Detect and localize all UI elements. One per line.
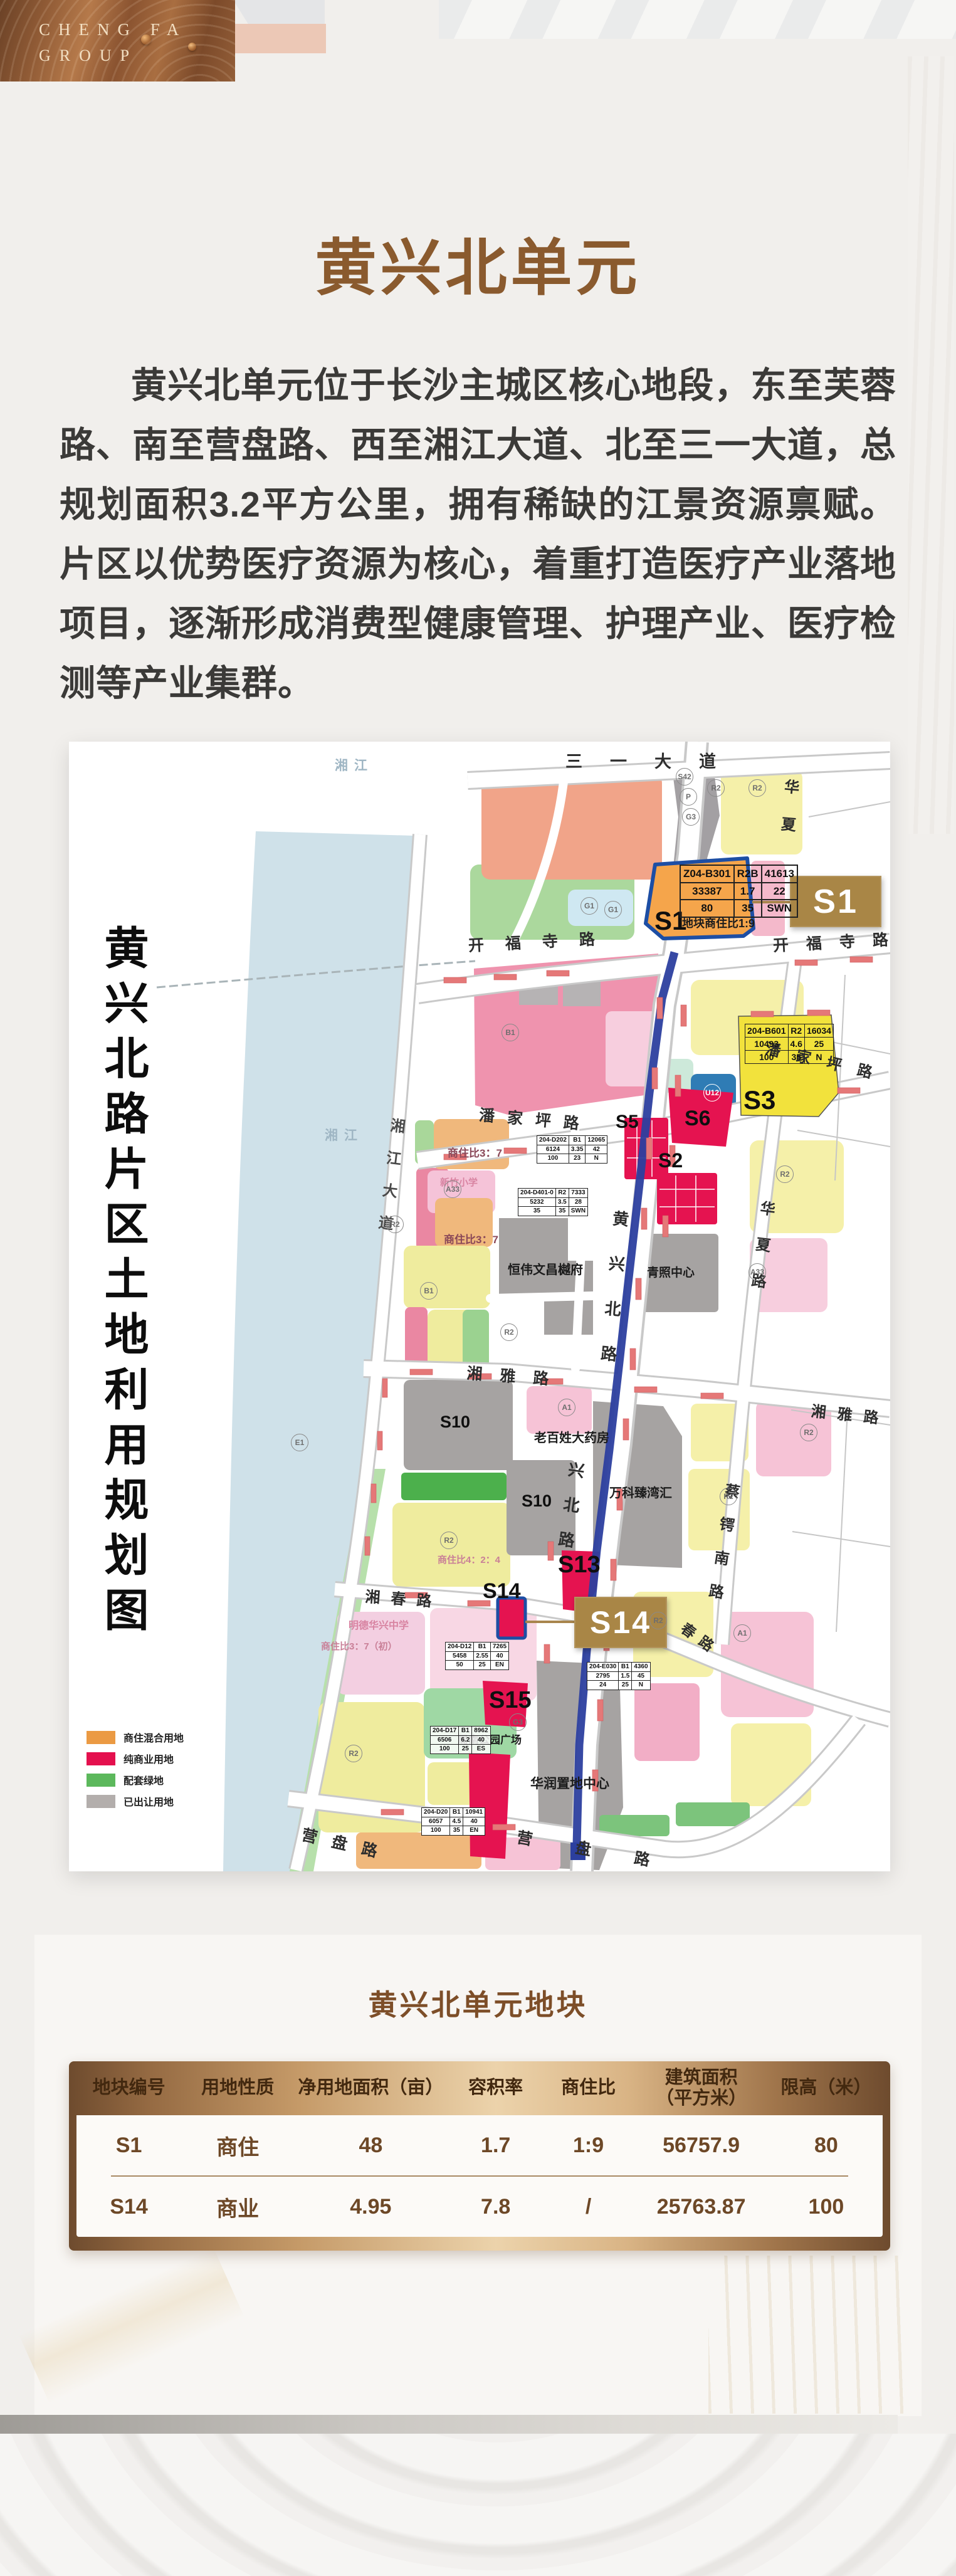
spec-table-d12: 204-D12B17265 54582.5540 5025EN	[445, 1642, 509, 1670]
table-row-s1: S1 商住 48 1.7 1:9 56757.9 80	[76, 2115, 883, 2175]
spec-table-d401: 204-D401-0R27333 52323.528 3535SWN	[518, 1188, 588, 1216]
cell: 7.8	[448, 2195, 544, 2219]
parcel-label-s2: S2	[658, 1149, 683, 1172]
note-ratio424: 商住比4：2：4	[438, 1553, 500, 1566]
zone-code: B1	[420, 1282, 438, 1300]
parcel-table-body: S1 商住 48 1.7 1:9 56757.9 80 S14 商业 4.95 …	[76, 2115, 883, 2237]
landmark-mingde-school: 明德华兴中学	[349, 1617, 409, 1632]
road-label-sanyi-avenue: 三一大道	[565, 748, 743, 772]
parcel-label-s10b: S10	[522, 1491, 552, 1511]
poster-page: { "header": { "brand_line1": "CHENG FA",…	[0, 0, 956, 2576]
marble-streak-bottom-right	[708, 2256, 915, 2414]
cell: 商住	[181, 2130, 294, 2161]
landmark-laobaixing: 老百姓大药房	[534, 1427, 609, 1446]
col-header-parcel-id: 地块编号	[76, 2078, 181, 2098]
brand-logo: CHENG FA GROUP	[0, 0, 235, 81]
zone-code: G1	[580, 897, 598, 915]
legend-swatch-green-space	[87, 1774, 115, 1787]
col-header-plot-ratio: 容积率	[448, 2078, 544, 2098]
zone-code: R2	[800, 1424, 817, 1441]
parcel-label-s15: S15	[489, 1687, 532, 1714]
cell: /	[544, 2195, 633, 2219]
zone-code: E1	[291, 1434, 308, 1451]
spec-table-s1: Z04-B301R2B41613 333871.722 8035SWN	[680, 865, 798, 918]
landmark-qingzhao: 青照中心	[647, 1263, 695, 1280]
zone-code: A1	[558, 1399, 575, 1416]
zone-code: U12	[703, 1084, 721, 1101]
note-ratio37-a: 商住比3：7	[448, 1144, 502, 1160]
zone-code: R2	[500, 1323, 518, 1341]
landmark-hengwei: 恒伟文昌樾府	[508, 1259, 583, 1278]
note-ratio37-b: 商住比3：7	[444, 1231, 498, 1246]
table-row-s14: S14 商业 4.95 7.8 / 25763.87 100	[76, 2177, 883, 2237]
cell: S1	[76, 2133, 181, 2158]
zone-code: R2	[345, 1745, 362, 1762]
droplet-decor	[141, 34, 151, 45]
col-header-net-area: 净用地面积（亩）	[294, 2078, 447, 2098]
marble-streak-right	[908, 56, 954, 834]
legend-item: 纯商业用地	[87, 1751, 184, 1766]
legend-swatch-mixed-use	[87, 1731, 115, 1744]
zone-code: B1	[502, 1024, 519, 1041]
zone-code: P	[680, 788, 697, 806]
landmark-huarun: 华润置地中心	[530, 1774, 609, 1792]
spec-table-e030: 204-E030B14360 27951.545 2425N	[587, 1662, 651, 1690]
legend-item: 商住混合用地	[87, 1730, 184, 1745]
cell: 1.7	[448, 2133, 544, 2158]
parcel-label-s13: S13	[558, 1552, 601, 1579]
badge-s1: S1	[790, 876, 881, 927]
brand-name-line2: GROUP	[39, 46, 138, 65]
legend-label: 纯商业用地	[123, 1751, 174, 1766]
legend-item: 配套绿地	[87, 1772, 184, 1787]
water-label-xiangjiang-2: 湘江	[325, 1125, 364, 1144]
spec-table-d20: 204-D20B110941 60574.540 10035EN	[421, 1807, 485, 1836]
parcel-label-s3: S3	[743, 1085, 775, 1115]
legend-label: 商住混合用地	[123, 1730, 184, 1745]
zone-code: A1	[733, 1624, 751, 1642]
legend-swatch-commercial	[87, 1752, 115, 1765]
map-card: 黄兴北路片区土地利用规划图 三一大道 开福寺路 开福寺路 潘家坪路 潘家坪路 湘…	[69, 742, 890, 1871]
zone-code: A33	[749, 1263, 766, 1281]
zone-code: G3	[509, 1713, 527, 1731]
col-header-mix-ratio: 商住比	[544, 2078, 633, 2098]
zone-code: R2	[720, 1488, 737, 1505]
zone-code: R2	[707, 779, 725, 797]
map-legend: 商住混合用地 纯商业用地 配套绿地 已出让用地	[87, 1730, 184, 1815]
note-ratio37-c: 商住比3：7（初）	[321, 1639, 397, 1653]
cell: 56757.9	[633, 2133, 770, 2158]
zone-code: R2	[749, 779, 766, 797]
gray-divider-bar	[0, 2415, 898, 2434]
col-header-height-limit: 限高（米）	[770, 2078, 883, 2098]
zone-code: R2	[776, 1165, 794, 1183]
parcel-label-s14: S14	[483, 1579, 521, 1604]
legend-item: 已出让用地	[87, 1794, 184, 1809]
map-title: 黄兴北路片区土地利用规划图	[90, 925, 154, 1664]
parcel-label-s5: S5	[616, 1112, 639, 1133]
zone-code: A33	[444, 1180, 461, 1198]
table-title: 黄兴北单元地块	[0, 1982, 956, 2024]
corner-wave-texture	[439, 0, 956, 39]
parcel-label-s10a: S10	[440, 1412, 470, 1432]
pink-band-decor	[234, 24, 326, 53]
cell: 1:9	[544, 2133, 633, 2158]
droplet-decor	[188, 43, 196, 51]
spec-table-s3: 204-B601R216034 104934.625 10035N	[745, 1024, 834, 1064]
landmark-vanke: 万科臻湾汇	[609, 1483, 672, 1501]
parcel-table-header: 地块编号 用地性质 净用地面积（亩） 容积率 商住比 建筑面积（平方米） 限高（…	[76, 2061, 883, 2115]
cell: 80	[770, 2133, 883, 2158]
ring-texture-footer	[0, 2434, 956, 2576]
cell: 100	[770, 2195, 883, 2219]
page-title: 黄兴北单元	[0, 218, 956, 307]
zone-code: R2	[649, 1612, 667, 1629]
parcel-table: 地块编号 用地性质 净用地面积（亩） 容积率 商住比 建筑面积（平方米） 限高（…	[69, 2061, 890, 2251]
s14-badge-connector	[525, 1621, 575, 1623]
zone-code: R2	[440, 1532, 458, 1549]
cell: 商业	[181, 2192, 294, 2222]
zone-code: S42	[676, 768, 693, 786]
brand-name-line1: CHENG FA	[39, 20, 187, 39]
zone-code: G1	[604, 901, 622, 918]
intro-paragraph: 黄兴北单元位于长沙主城区核心地段，东至芙蓉路、南至营盘路、西至湘江大道、北至三一…	[60, 356, 896, 713]
cell: 4.95	[294, 2195, 447, 2219]
gray-diagonal-decor	[233, 0, 325, 26]
spec-table-d202: 204-D202B112065 61243.3542 10023N	[537, 1135, 607, 1164]
legend-swatch-transferred	[87, 1795, 115, 1808]
col-header-land-use: 用地性质	[181, 2078, 294, 2098]
legend-label: 配套绿地	[123, 1772, 164, 1787]
spec-table-d17: 204-D17B18962 65066.240 10025ES	[430, 1726, 491, 1754]
parcel-label-s6: S6	[685, 1107, 711, 1131]
zone-code: G3	[682, 808, 700, 826]
water-label-xiangjiang-1: 湘江	[335, 755, 374, 774]
col-header-gfa: 建筑面积（平方米）	[633, 2068, 770, 2110]
legend-label: 已出让用地	[123, 1794, 174, 1809]
cell: 25763.87	[633, 2195, 770, 2219]
cell: 48	[294, 2133, 447, 2158]
zone-code: R2	[386, 1216, 404, 1233]
cell: S14	[76, 2195, 181, 2219]
